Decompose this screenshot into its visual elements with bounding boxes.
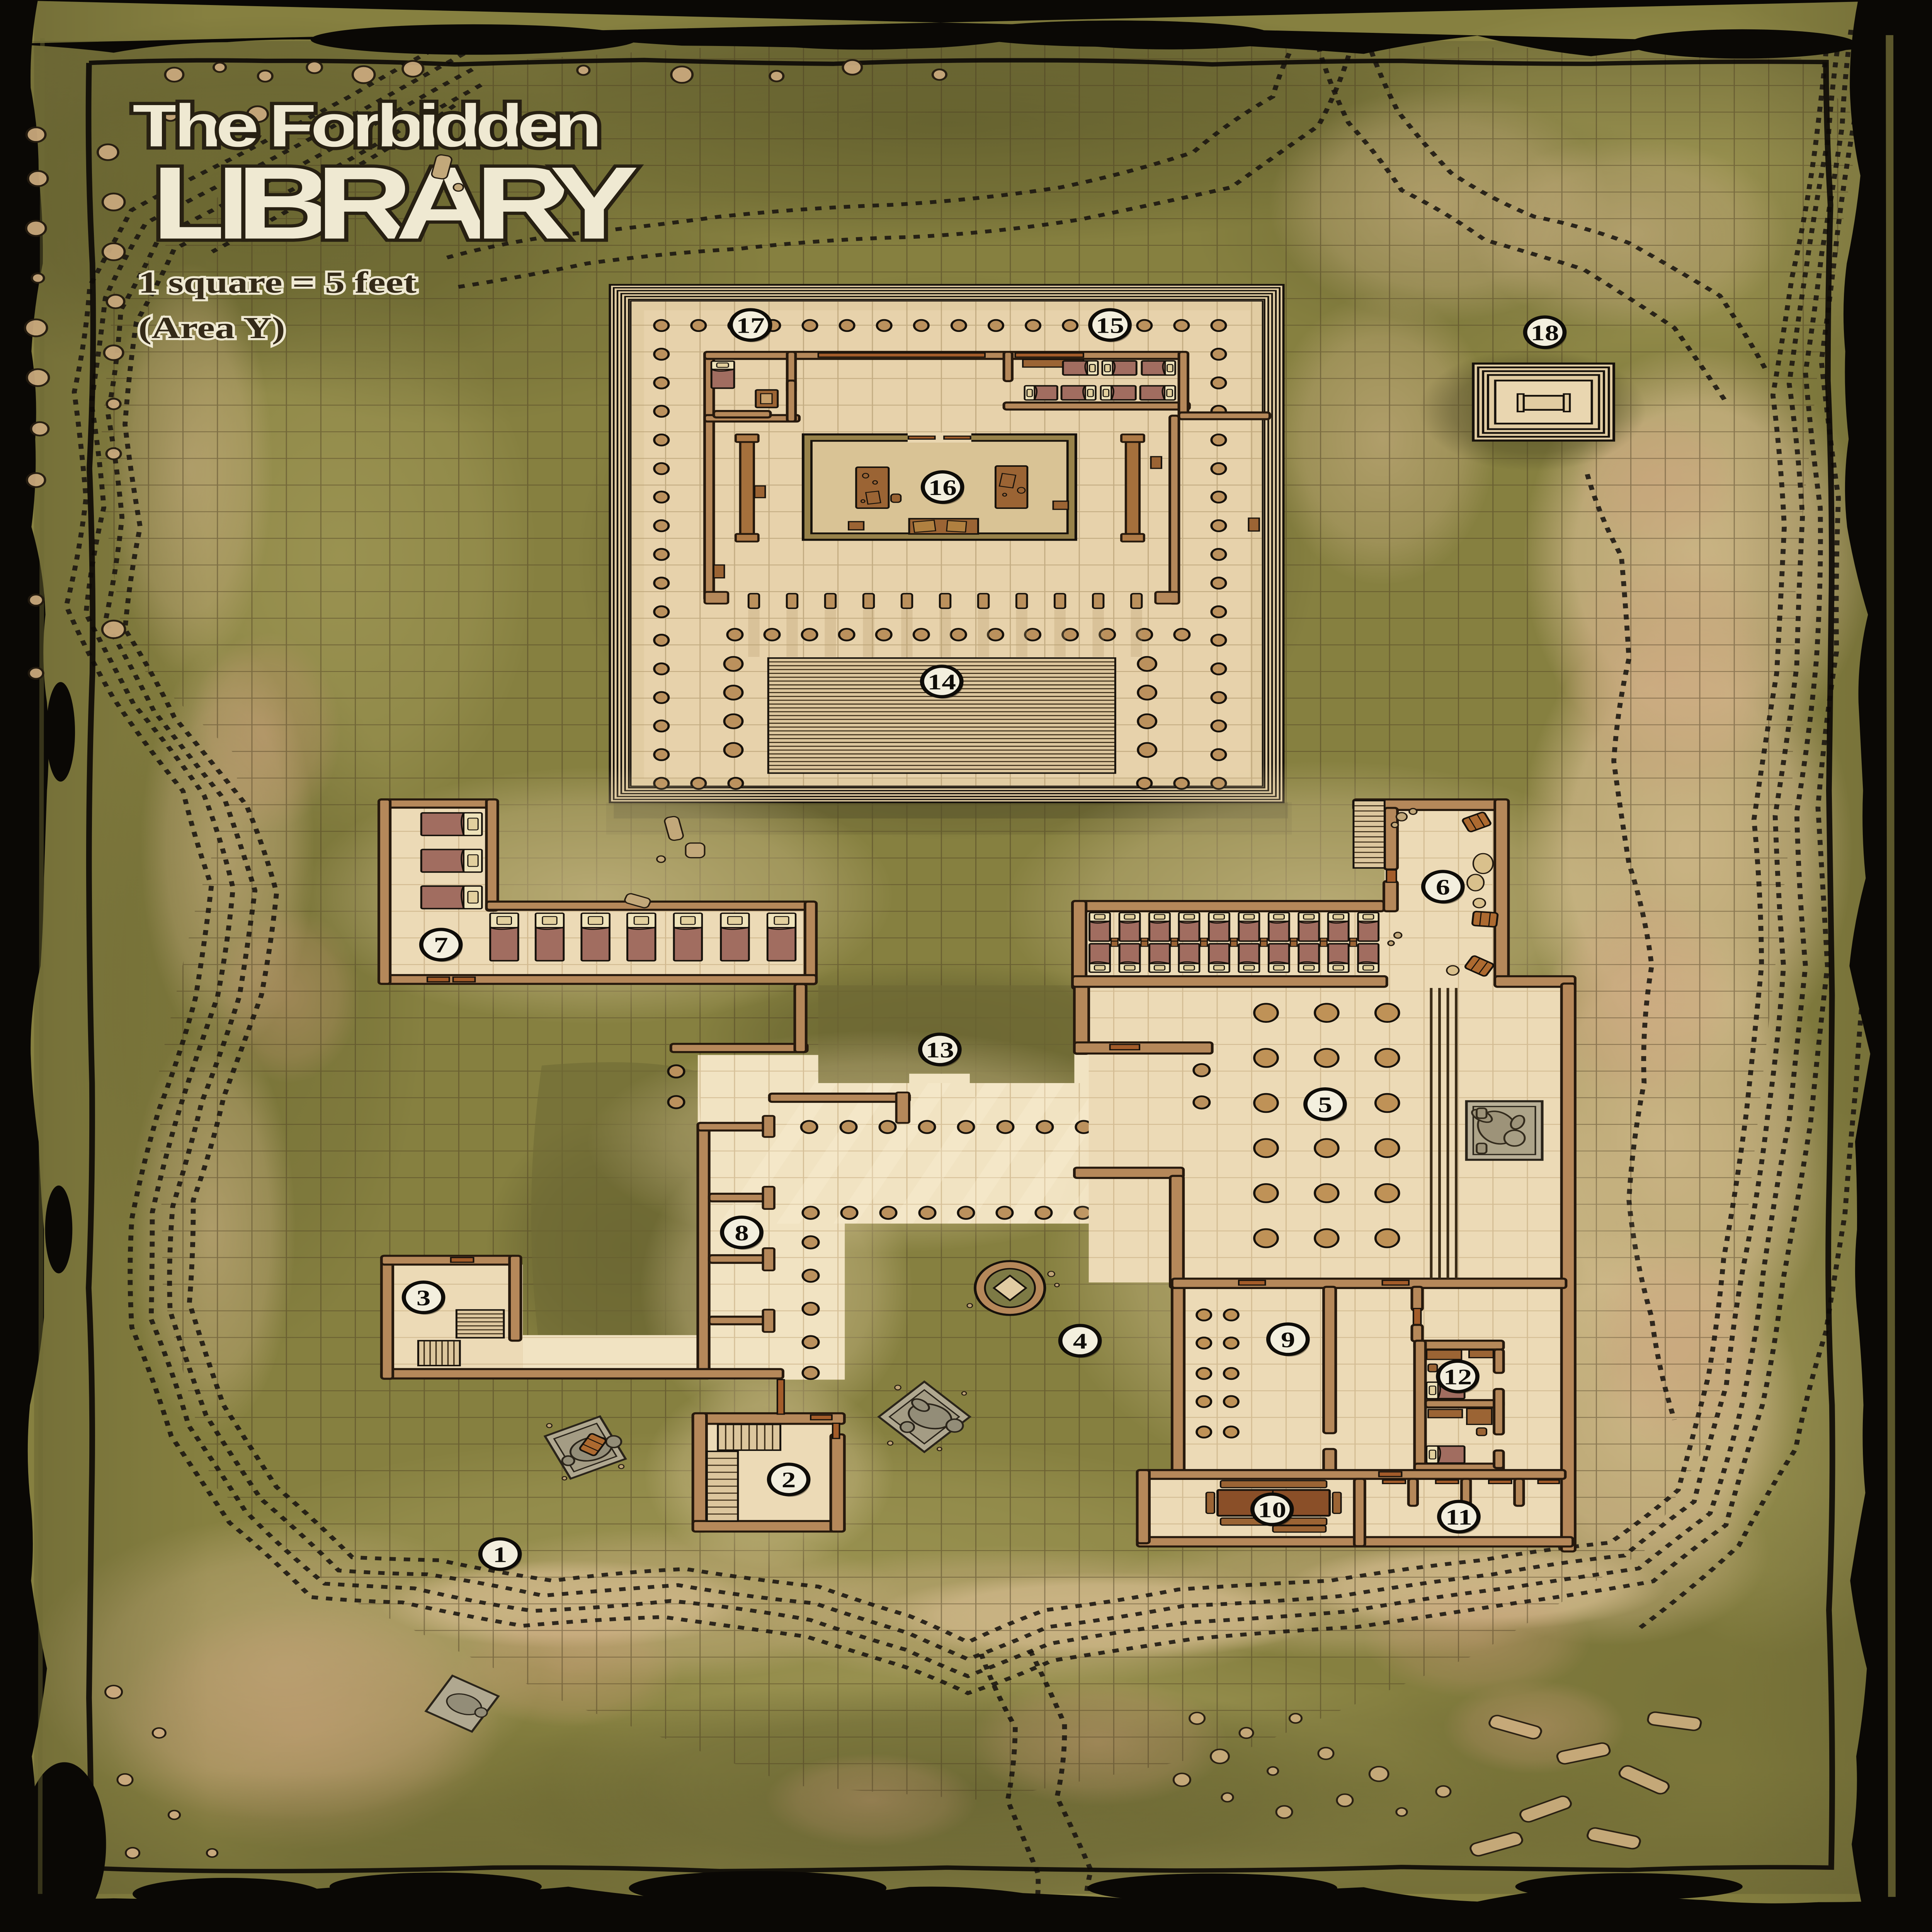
svg-text:4: 4	[1073, 1329, 1087, 1354]
svg-text:5: 5	[1318, 1093, 1332, 1117]
svg-text:17: 17	[736, 313, 765, 338]
svg-text:14: 14	[928, 670, 956, 694]
svg-text:9: 9	[1281, 1328, 1295, 1352]
svg-text:10: 10	[1258, 1498, 1286, 1522]
svg-text:(Area Y): (Area Y)	[138, 311, 285, 345]
svg-text:2: 2	[782, 1468, 796, 1492]
svg-text:13: 13	[926, 1038, 954, 1062]
svg-text:12: 12	[1444, 1365, 1472, 1389]
svg-text:18: 18	[1531, 321, 1559, 345]
svg-text:1 square = 5 feet: 1 square = 5 feet	[138, 265, 417, 299]
svg-text:3: 3	[417, 1286, 431, 1310]
svg-text:16: 16	[928, 476, 957, 500]
svg-text:7: 7	[434, 933, 448, 957]
svg-text:11: 11	[1446, 1505, 1472, 1529]
svg-text:6: 6	[1436, 875, 1450, 900]
svg-text:8: 8	[735, 1221, 749, 1245]
svg-text:LIBRARY: LIBRARY	[151, 146, 641, 260]
svg-text:15: 15	[1096, 313, 1124, 338]
svg-text:1: 1	[493, 1543, 507, 1567]
